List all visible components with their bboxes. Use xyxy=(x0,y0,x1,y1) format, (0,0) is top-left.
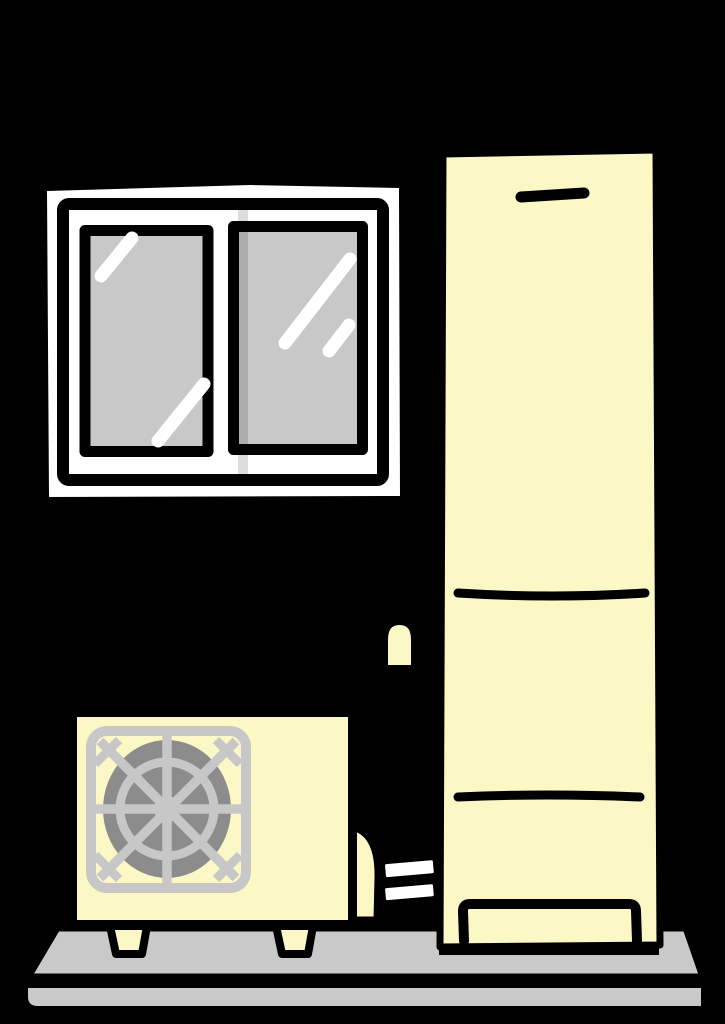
storage-tank-group xyxy=(439,150,660,950)
window-sash-overlap-shadow xyxy=(238,208,248,475)
pipe-lower xyxy=(382,881,436,903)
fan-grille-hub xyxy=(154,796,180,822)
heat-pump-group xyxy=(73,713,353,955)
window-group xyxy=(47,185,400,497)
illustration-svg xyxy=(0,0,725,1024)
tank-seam-upper xyxy=(458,593,645,596)
tank-seam-lower xyxy=(458,795,640,797)
heat-pump-foot-left xyxy=(110,926,147,954)
scene-background: { "description": "Cartoon clip-art illus… xyxy=(0,0,725,1024)
tank-vent-dash xyxy=(521,193,584,197)
pipe-stub xyxy=(385,622,414,668)
pipe-lower-wrap xyxy=(382,881,436,903)
pipe-upper-wrap xyxy=(382,857,436,880)
tank-body xyxy=(440,150,660,947)
heat-pump-foot-right xyxy=(276,926,313,954)
base-slab-lower xyxy=(28,988,701,1006)
pipe-upper xyxy=(382,857,436,880)
